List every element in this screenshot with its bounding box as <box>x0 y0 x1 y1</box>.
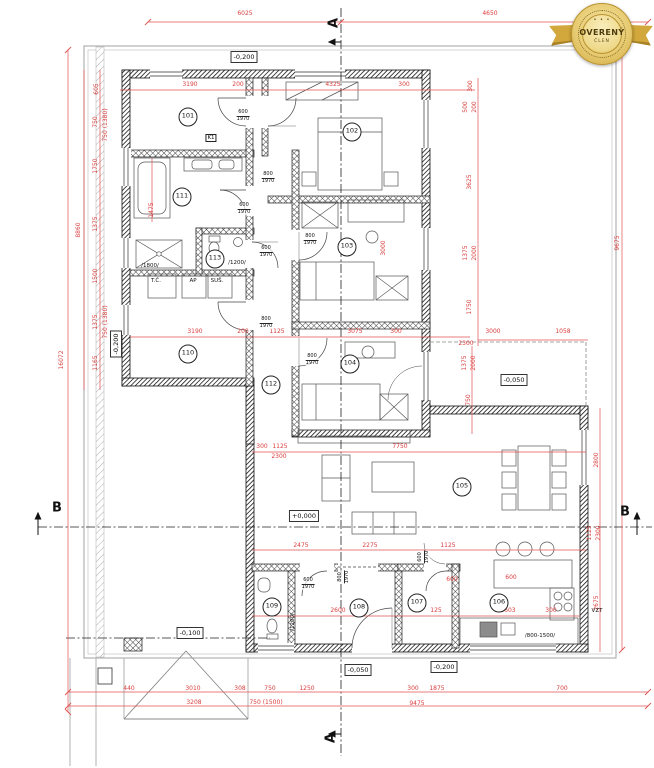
dimension-label: 2000 <box>471 355 477 370</box>
dimension-label: 600 <box>505 575 516 581</box>
dimension-label: 200 <box>232 82 243 88</box>
annotation-label: K1 <box>205 134 216 142</box>
dimension-label: 1058 <box>555 329 570 335</box>
dimension-label: 4650 <box>482 11 497 17</box>
door-size-label: 6001970 <box>238 203 251 215</box>
room-number: 113 <box>206 250 225 269</box>
badge-title: OVERENÝ <box>572 28 632 37</box>
door-size-label: 8001970 <box>306 354 319 366</box>
dimension-label: 300 <box>398 82 409 88</box>
dimension-label: 9475 <box>409 701 424 707</box>
room-number: 103 <box>338 238 357 257</box>
annotation-label: VZT <box>592 608 603 614</box>
dimension-label: 750 <box>93 116 99 127</box>
room-number: 106 <box>490 594 509 613</box>
dimension-label: 4325 <box>325 82 340 88</box>
dimension-label: 1125 <box>440 543 455 549</box>
dimension-label: 2475 <box>293 543 308 549</box>
elevation-label: +0,000 <box>289 510 319 522</box>
dimension-label: 1375 <box>93 216 99 231</box>
elevation-label: -0,050 <box>345 664 372 676</box>
dimension-label: 3075 <box>347 329 362 335</box>
annotation-label: SUŠ. <box>211 278 224 284</box>
door-size-label: 8001970 <box>304 234 317 246</box>
room-number: 108 <box>350 599 369 618</box>
dimension-label: 3625 <box>467 174 473 189</box>
dimension-label: 1875 <box>429 686 444 692</box>
dimension-label: 750 (1500) <box>249 700 282 706</box>
dimension-label: 2300 <box>596 525 602 540</box>
dimension-label: 3010 <box>185 686 200 692</box>
dimension-label: 300 <box>468 80 474 91</box>
elevation-label: -0,200 <box>110 331 122 358</box>
dimension-label: 1165 <box>93 355 99 370</box>
dimension-label: 2000 <box>472 245 478 260</box>
dimension-label: 750 (1380) <box>103 108 109 141</box>
annotation-label: AP <box>189 278 196 284</box>
room-number: 112 <box>262 376 281 395</box>
badge-subtitle: ČLEN <box>572 39 632 44</box>
dimension-label: 2600 <box>330 608 345 614</box>
elevation-label: -0,200 <box>231 51 258 63</box>
room-number: 105 <box>453 478 472 497</box>
door-size-label: 6001970 <box>260 246 273 258</box>
section-marker-b: B <box>620 505 630 520</box>
dimension-label: 300 <box>390 329 401 335</box>
elevation-label: -0,100 <box>177 627 204 639</box>
section-marker-b: B <box>52 501 62 516</box>
room-number: 111 <box>173 188 192 207</box>
dimension-label: 1375 <box>463 245 469 260</box>
dimension-label: 700 <box>556 686 567 692</box>
dimension-label: 125 <box>430 608 441 614</box>
dimension-label: 308 <box>234 686 245 692</box>
dimension-label: 9675 <box>615 235 621 250</box>
dimension-label: 200 <box>472 101 478 112</box>
dimension-label: 1125 <box>587 525 593 540</box>
membership-badge: • • • OVERENÝ ČLEN <box>548 0 654 68</box>
dimension-label: 750 <box>466 394 472 405</box>
elevation-label: -0,050 <box>501 374 528 386</box>
elevation-label: -0,200 <box>431 661 458 673</box>
dimension-label: 7750 <box>392 444 407 450</box>
dimension-label: 605 <box>94 83 100 94</box>
door-size-label: 6001970 <box>418 551 430 564</box>
room-number: 104 <box>341 355 360 374</box>
dimension-label: 1500 <box>93 268 99 283</box>
dimension-label: 750 (1380) <box>103 305 109 338</box>
dimension-label: 1250 <box>299 686 314 692</box>
dimension-label: 750 <box>264 686 275 692</box>
door-size-label: 8001970 <box>260 317 273 329</box>
dimension-label: 16072 <box>59 350 65 369</box>
dimension-label: 3190 <box>182 82 197 88</box>
room-number: 110 <box>179 345 198 364</box>
dimension-label: 200 <box>237 329 248 335</box>
annotation-label: /1200/ <box>290 613 296 631</box>
badge-seal: • • • OVERENÝ ČLEN <box>571 3 633 65</box>
dimension-label: 600 <box>446 577 457 583</box>
dimension-label: 1375 <box>462 355 468 370</box>
dimension-label: 300 <box>545 608 556 614</box>
dimension-label: 2300 <box>271 454 286 460</box>
annotation-label: /1800/ <box>141 263 159 269</box>
dimension-label: 3000 <box>485 329 500 335</box>
dimension-label: 1125 <box>269 329 284 335</box>
badge-dots: • • • <box>572 17 632 23</box>
room-number: 101 <box>179 108 198 127</box>
dimension-label: 300 <box>407 686 418 692</box>
dimension-label: 2275 <box>362 543 377 549</box>
dimension-label: 1750 <box>467 299 473 314</box>
annotation-label: /800-1500/ <box>525 633 555 639</box>
door-size-label: 8001970 <box>338 571 350 584</box>
dimension-label: 500 <box>463 101 469 112</box>
dimension-label: 1375 <box>93 314 99 329</box>
dimension-label: 300 <box>256 444 267 450</box>
annotation-label: /1200/ <box>228 260 246 266</box>
dimension-label: 3190 <box>187 329 202 335</box>
dimension-label: 3208 <box>186 700 201 706</box>
door-size-label: 6001970 <box>302 578 315 590</box>
dimension-label: 1750 <box>93 158 99 173</box>
dimension-label: 2300 <box>458 341 473 347</box>
room-number: 107 <box>408 594 427 613</box>
label-layer: 6025465031902004325300160728860605750175… <box>0 0 654 768</box>
dimension-label: 3000 <box>381 240 387 255</box>
annotation-label: T.Č. <box>151 278 161 284</box>
section-marker-a: A <box>324 733 339 743</box>
room-number: 102 <box>343 123 362 142</box>
dimension-label: 2800 <box>594 452 600 467</box>
dimension-label: 1475 <box>149 202 155 217</box>
door-size-label: 8001970 <box>262 172 275 184</box>
floor-plan-page: 6025465031902004325300160728860605750175… <box>0 0 654 768</box>
room-number: 109 <box>263 598 282 617</box>
dimension-label: 1125 <box>272 444 287 450</box>
dimension-label: 6025 <box>237 11 252 17</box>
door-size-label: 6001970 <box>237 110 250 122</box>
dimension-label: 8860 <box>76 222 82 237</box>
dimension-label: 440 <box>123 686 134 692</box>
section-marker-a: A <box>327 18 342 28</box>
